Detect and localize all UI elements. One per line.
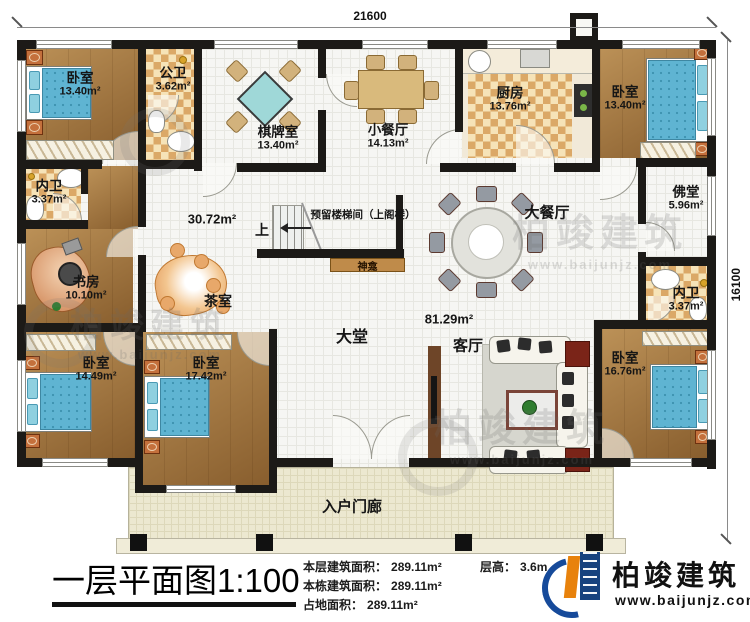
burner xyxy=(580,104,587,111)
wall xyxy=(594,320,602,467)
wall xyxy=(17,160,102,169)
room-label-bedroom-bm: 卧室17.42m² xyxy=(186,355,227,382)
blanket xyxy=(160,378,209,436)
dining-table xyxy=(358,70,424,109)
kitchen-sink xyxy=(520,49,550,68)
kitchen-basin xyxy=(468,50,491,73)
room-label-tea-room: 茶室 xyxy=(204,294,232,310)
bed xyxy=(650,364,711,430)
wall xyxy=(237,163,325,172)
wall xyxy=(146,160,202,169)
tv xyxy=(431,376,437,424)
stat-floor-area: 本层建筑面积：289.11m² xyxy=(303,558,442,575)
porch-column xyxy=(256,534,273,551)
chair xyxy=(429,232,445,253)
room-label-inner-bath-right: 内卫3.37m² xyxy=(669,285,704,312)
pillow xyxy=(27,378,38,399)
nightstand xyxy=(26,50,43,65)
porch-column xyxy=(455,534,472,551)
wall xyxy=(138,169,146,227)
chair xyxy=(366,55,385,70)
dimension-line-right xyxy=(727,40,728,540)
company-name: 柏竣建筑 xyxy=(612,554,740,594)
wall xyxy=(638,257,716,266)
window xyxy=(42,458,108,467)
area-label-great-hall: 81.29m² xyxy=(425,313,473,328)
shrine-label: 神龛 xyxy=(358,258,378,273)
wall xyxy=(17,220,88,229)
stove xyxy=(574,84,593,117)
window xyxy=(17,243,26,305)
round-table-center xyxy=(468,224,504,260)
wall xyxy=(592,40,600,167)
wall xyxy=(594,320,716,329)
dimension-tick xyxy=(720,533,731,544)
floor-plan-page: 神龛 xyxy=(0,0,750,622)
plan-title: 一层平面图1:100 xyxy=(52,554,300,602)
wall xyxy=(638,158,646,224)
tea-stool xyxy=(160,296,175,311)
cushion xyxy=(539,340,553,353)
wall xyxy=(81,166,88,194)
pillow xyxy=(29,71,40,90)
room-label-kitchen: 厨房13.76m² xyxy=(490,85,531,112)
pillow xyxy=(27,404,38,425)
title-underline xyxy=(52,602,296,607)
company-logo-icon xyxy=(542,550,604,612)
room-label-public-bath: 公卫3.62m² xyxy=(156,65,191,92)
burner xyxy=(580,90,587,97)
plant xyxy=(522,400,537,415)
room-label-buddha-hall: 佛堂5.96m² xyxy=(669,184,704,211)
wall xyxy=(257,249,404,258)
nightstand xyxy=(26,120,43,135)
stairs-up-label: 上 xyxy=(255,223,269,239)
window xyxy=(622,40,700,49)
stairs-note-label: 预留楼梯间（上阁楼） xyxy=(311,210,416,222)
dimension-tick xyxy=(720,31,731,42)
nightstand xyxy=(144,360,160,374)
toilet xyxy=(148,110,165,133)
chair xyxy=(398,55,417,70)
room-label-bedroom-tr: 卧室13.40m² xyxy=(605,84,646,111)
nightstand xyxy=(24,356,40,370)
wardrobe xyxy=(146,334,232,350)
wall xyxy=(194,40,202,171)
window xyxy=(362,40,428,49)
nightstand xyxy=(24,434,40,448)
tea-stool xyxy=(194,254,209,269)
room-label-inner-bath-left: 内卫3.37m² xyxy=(32,178,67,205)
dimension-top: 21600 xyxy=(340,9,400,23)
room-label-bedroom-bl: 卧室14.49m² xyxy=(76,355,117,382)
room-label-bedroom-tl: 卧室13.40m² xyxy=(60,70,101,97)
wardrobe xyxy=(642,331,711,346)
pillow xyxy=(29,94,40,113)
room-label-chess-room: 棋牌室13.40m² xyxy=(258,124,299,151)
room-label-grand-dining: 大餐厅 xyxy=(524,206,569,223)
tea-stool xyxy=(170,243,185,258)
blanket xyxy=(648,60,696,140)
window xyxy=(487,40,557,49)
window xyxy=(630,458,692,467)
chair xyxy=(527,232,543,253)
stat-building-area: 本栋建筑面积：289.11m² xyxy=(303,577,442,594)
wall xyxy=(554,163,600,172)
cushion xyxy=(517,337,531,350)
pillow xyxy=(147,409,158,431)
nightstand xyxy=(144,440,160,454)
room-label-porch: 入户门廊 xyxy=(322,500,382,517)
side-table xyxy=(565,341,590,367)
stair-arrow-line xyxy=(287,227,311,229)
wall xyxy=(135,323,143,493)
porch-column xyxy=(586,534,603,551)
sink xyxy=(167,131,195,152)
dimension-tick xyxy=(11,16,22,27)
bed xyxy=(646,58,711,142)
cushion xyxy=(562,372,574,385)
window xyxy=(707,176,716,236)
tea-stool xyxy=(206,278,221,293)
wall xyxy=(138,255,146,332)
pillow xyxy=(147,382,158,404)
wardrobe xyxy=(26,140,114,160)
stair-arrow-head xyxy=(280,223,288,233)
room-label-study: 书房10.10m² xyxy=(66,274,107,301)
dimension-right: 16100 xyxy=(729,268,743,301)
wall xyxy=(269,329,277,493)
shrine: 神龛 xyxy=(330,258,405,272)
chair xyxy=(344,81,359,100)
cushion xyxy=(562,394,574,407)
dimension-tick xyxy=(706,16,717,27)
wall xyxy=(318,40,326,78)
room-label-great-hall: 大堂 xyxy=(336,329,368,347)
area-label-hall: 30.72m² xyxy=(188,213,236,228)
chair xyxy=(424,81,439,100)
window xyxy=(36,40,112,49)
chair xyxy=(476,282,497,298)
logo-blue-building xyxy=(580,552,600,600)
window xyxy=(166,485,236,493)
wardrobe xyxy=(26,334,96,351)
window xyxy=(17,60,26,132)
wall xyxy=(455,40,463,132)
window xyxy=(707,350,716,440)
room-label-small-dining: 小餐厅14.13m² xyxy=(368,122,409,149)
plant xyxy=(52,302,61,311)
stat-land-area: 占地面积：289.11m² xyxy=(303,596,418,613)
wall xyxy=(409,458,603,467)
room-label-bedroom-br: 卧室16.76m² xyxy=(605,350,646,377)
dimension-line-top xyxy=(17,27,716,28)
window xyxy=(707,58,716,136)
light-fixture xyxy=(179,56,187,64)
chair xyxy=(476,186,497,202)
suite-corridor-floor xyxy=(88,166,138,229)
cushion xyxy=(496,339,511,353)
window xyxy=(214,40,298,49)
company-url: www.baijunjz.com xyxy=(615,592,750,608)
porch-column xyxy=(130,534,147,551)
window xyxy=(17,360,26,432)
bed xyxy=(144,376,210,438)
wall xyxy=(636,158,716,167)
wall xyxy=(17,323,140,332)
room-label-living-room: 客厅 xyxy=(453,339,483,356)
wall xyxy=(138,40,146,169)
blanket xyxy=(652,366,697,428)
cushion xyxy=(562,416,574,429)
wall xyxy=(440,163,516,172)
stat-floor-height: 层高：3.6m xyxy=(480,558,547,575)
wall xyxy=(269,458,333,467)
